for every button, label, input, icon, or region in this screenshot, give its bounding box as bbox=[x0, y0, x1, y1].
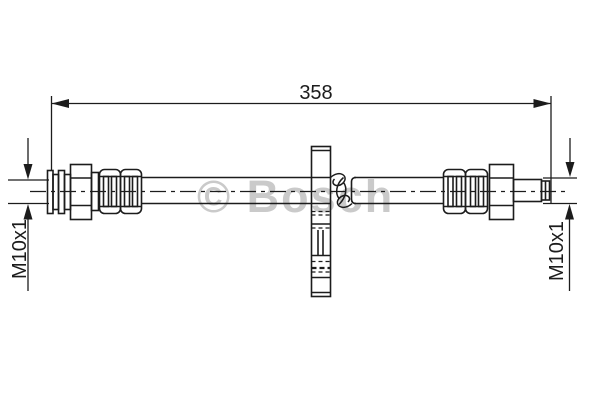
right-threaded-stub bbox=[514, 180, 550, 202]
brake-hose-drawing: © Bosch bbox=[0, 0, 600, 400]
technical-drawing-canvas: © Bosch bbox=[0, 0, 600, 400]
thread-arrow-up-left bbox=[24, 204, 33, 220]
thread-arrow-down-right bbox=[566, 162, 575, 177]
dimension-arrow-left bbox=[52, 99, 70, 108]
dimension-arrow-right bbox=[534, 99, 552, 108]
bosch-watermark: © Bosch bbox=[197, 171, 394, 222]
length-dimension-label: 358 bbox=[299, 82, 332, 104]
thread-arrow-up-right bbox=[565, 204, 574, 220]
right-thread-label: M10x1 bbox=[546, 221, 568, 281]
left-thread-label: M10x1 bbox=[9, 219, 31, 279]
thread-arrow-down-left bbox=[24, 164, 33, 180]
